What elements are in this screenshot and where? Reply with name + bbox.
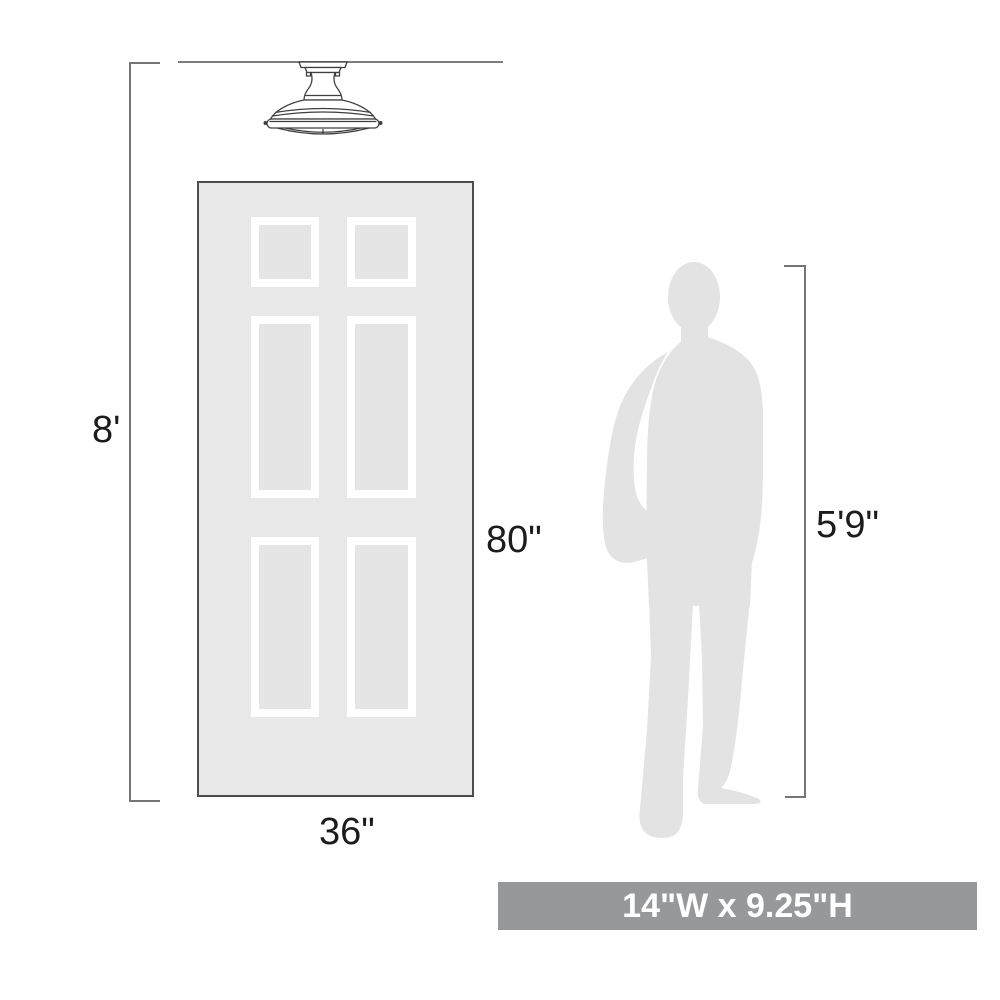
person-silhouette-icon — [590, 260, 770, 840]
six-panel-door — [197, 181, 474, 797]
ceiling-height-label: 8' — [92, 411, 120, 449]
person-height-dimension-tick-bottom — [785, 796, 806, 798]
door-panel — [251, 217, 319, 287]
door-panel — [347, 537, 416, 717]
person-height-label: 5'9" — [816, 506, 879, 544]
person-right-leg — [698, 600, 761, 804]
person-hips — [647, 560, 752, 606]
person-torso — [647, 334, 763, 563]
product-dimension-diagram: 8' — [0, 0, 1000, 1000]
product-size-banner: 14"W x 9.25"H — [498, 882, 977, 930]
product-size-label: 14"W x 9.25"H — [622, 887, 853, 925]
door-panel — [251, 316, 319, 498]
person-height-dimension-tick-top — [784, 265, 806, 267]
door-width-label: 36" — [319, 813, 375, 851]
fixture-diffuser — [277, 128, 369, 135]
ceiling-light-icon — [262, 60, 384, 140]
door-height-label: 80" — [486, 521, 542, 559]
ceiling-height-dimension-tick-bottom — [129, 800, 160, 802]
door-panel — [347, 316, 416, 498]
ceiling-height-dimension-line — [129, 62, 131, 802]
fixture-dome-shade — [264, 100, 383, 128]
door-panel — [251, 537, 319, 717]
person-left-leg — [639, 600, 693, 838]
door-panel — [347, 217, 416, 287]
person-height-dimension-line — [804, 265, 806, 798]
ceiling-height-dimension-tick-top — [129, 62, 160, 64]
